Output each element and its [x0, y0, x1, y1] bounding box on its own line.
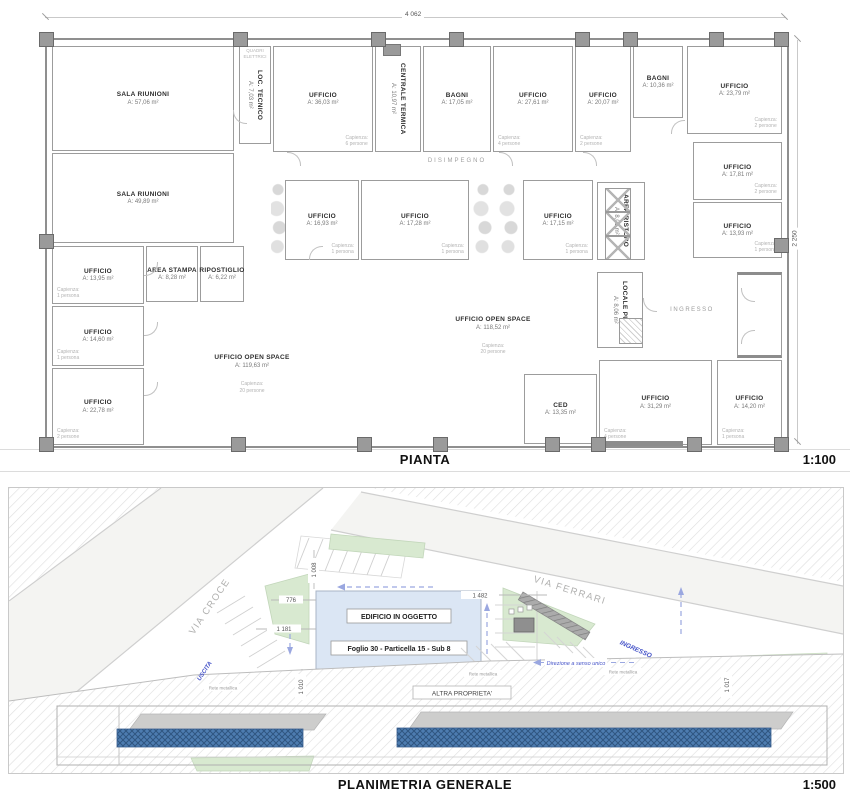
dim-1017: 1 017: [725, 677, 731, 693]
door-arc: [583, 152, 597, 166]
column: [545, 437, 560, 452]
column: [623, 32, 638, 47]
column: [449, 32, 464, 47]
planimetria-scale: 1:500: [803, 777, 836, 792]
fence-label: Rete metallica: [209, 686, 238, 691]
dim-1008: 1 008: [312, 562, 318, 578]
column: [39, 32, 54, 47]
room-ufficio-20: UFFICIO A: 20,07 m² Capienza: 2 persone: [575, 46, 631, 152]
wall-segment: [599, 441, 683, 446]
door-arc: [287, 152, 301, 166]
small-structure: [527, 605, 532, 610]
small-structure: [509, 609, 514, 614]
room-area-stampa: AREA STAMPA A: 8,28 m²: [146, 246, 198, 302]
corridor-label: DISIMPEGNO: [407, 158, 507, 164]
pianta-title: PIANTA: [0, 452, 850, 467]
room-bagni-10: BAGNI A: 10,36 m²: [633, 46, 683, 118]
warehouse-roof-blue: [117, 729, 303, 747]
room-ripostiglio: RIPOSTIGLIO A: 6,22 m²: [200, 246, 244, 302]
divider: [0, 449, 850, 450]
column: [39, 437, 54, 452]
fence-label: Rete metallica: [609, 670, 638, 675]
room-bagni-17: BAGNI A: 17,05 m²: [423, 46, 491, 152]
column: [774, 437, 789, 452]
column: [774, 238, 789, 253]
room-ufficio-36: UFFICIO A: 36,03 m² Capienza: 6 persone: [273, 46, 373, 152]
room-ufficio-23: UFFICIO A: 23,79 m² Capienza: 2 persone: [687, 46, 782, 134]
column: [591, 437, 606, 452]
column: [709, 32, 724, 47]
other-property-label: ALTRA PROPRIETA': [432, 691, 492, 698]
site-plan-panel: EDIFICIO IN OGGETTO Foglio 30 - Particel…: [8, 487, 844, 774]
divider: [0, 471, 850, 472]
room-open-space-1: UFFICIO OPEN SPACE A: 119,63 m² Capienza…: [146, 304, 358, 445]
cleaning-storage-hatch: [619, 318, 643, 344]
room-ufficio-22-78: UFFICIO A: 22,78 m² Capienza: 2 persone: [52, 368, 144, 445]
drawing-sheet: 4 062 2 250 SALA RIUNIONI A: 57,06 m² LO…: [0, 0, 850, 797]
floor-plan: SALA RIUNIONI A: 57,06 m² LOC. TECNICO A…: [45, 38, 789, 448]
room-sala-riunioni-1: SALA RIUNIONI A: 57,06 m²: [52, 46, 234, 151]
plant-icon: [499, 182, 519, 258]
door-arc: [499, 152, 513, 166]
column: [39, 234, 54, 249]
site-plan: EDIFICIO IN OGGETTO Foglio 30 - Particel…: [9, 488, 843, 773]
dim-1010: 1 010: [299, 679, 305, 695]
room-ufficio-31-29: UFFICIO A: 31,29 m² Capienza: 4 persone: [599, 360, 712, 445]
shed-building: [514, 618, 534, 632]
room-ced: CED A: 13,35 m²: [524, 374, 597, 444]
column: [433, 437, 448, 452]
warehouse-roof: [129, 714, 326, 730]
door-arc: [671, 120, 685, 134]
dim-776: 776: [286, 598, 297, 604]
pianta-scale: 1:100: [803, 452, 836, 467]
cadastral-label: Foglio 30 - Particella 15 - Sub 8: [347, 646, 450, 653]
room-ufficio-27: UFFICIO A: 27,61 m² Capienza: 4 persone: [493, 46, 573, 152]
subject-building: [316, 591, 481, 669]
planimetria-title: PLANIMETRIA GENERALE: [0, 777, 850, 792]
room-ufficio-17-81: UFFICIO A: 17,81 m² Capienza: 2 persone: [693, 142, 782, 200]
electrical-panel-label: QUADRI ELETTRICI: [239, 48, 271, 59]
dimension-width-label: 4 062: [402, 11, 424, 18]
column: [233, 32, 248, 47]
dim-1181: 1 181: [276, 627, 292, 633]
warehouse-roof-blue: [397, 728, 771, 747]
column: [231, 437, 246, 452]
room-centrale-termica: CENTRALE TERMICA A: 10,97 m²: [375, 46, 421, 152]
warehouse-roof: [409, 712, 793, 729]
plant-icon: [473, 182, 493, 258]
green-area: [191, 756, 314, 771]
room-locale-tecnico: LOC. TECNICO A: 7,03 m²: [239, 46, 271, 144]
building-label: EDIFICIO IN OGGETTO: [361, 614, 438, 621]
elevator-shaft: [605, 212, 631, 236]
column: [687, 437, 702, 452]
column: [357, 437, 372, 452]
one-way-label: Direzione a senso unico: [547, 661, 606, 667]
column: [575, 32, 590, 47]
room-ufficio-14-20: UFFICIO A: 14,20 m² Capienza: 1 persona: [717, 360, 782, 445]
room-sala-riunioni-2: SALA RIUNIONI A: 49,89 m²: [52, 153, 234, 243]
room-ufficio-17-15: UFFICIO A: 17,15 m² Capienza: 1 persona: [523, 180, 593, 260]
elevator-shaft: [605, 236, 631, 260]
entrance-vestibule: [737, 272, 782, 358]
dimension-height-label: 2 250: [792, 227, 799, 249]
door-arc: [233, 110, 247, 124]
fence-label: Rete metallica: [469, 672, 498, 677]
small-structure: [518, 607, 523, 612]
column: [371, 32, 386, 47]
elevator-shaft: [605, 188, 631, 212]
room-ufficio-14-60: UFFICIO A: 14,60 m² Capienza: 1 persona: [52, 306, 144, 366]
column: [774, 32, 789, 47]
plant-icon: [271, 182, 285, 258]
room-ufficio-17-28: UFFICIO A: 17,28 m² Capienza: 1 persona: [361, 180, 469, 260]
room-ufficio-13-95: UFFICIO A: 13,95 m² Capienza: 1 persona: [52, 246, 144, 304]
room-ufficio-13-93: UFFICIO A: 13,93 m² Capienza: 1 persona: [693, 202, 782, 258]
dim-1482: 1 482: [472, 594, 488, 600]
